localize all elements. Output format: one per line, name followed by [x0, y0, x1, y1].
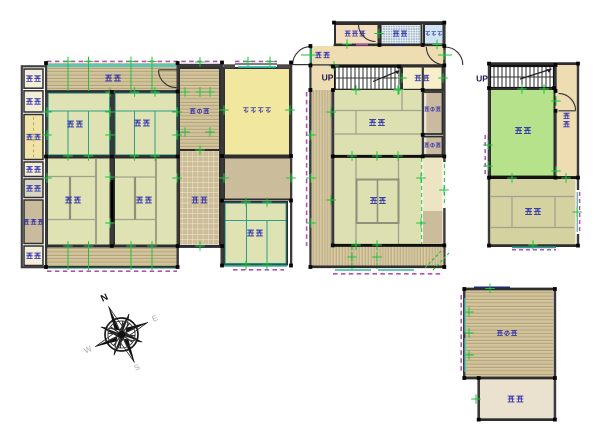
svg-text:UP: UP: [322, 73, 334, 83]
svg-text:UP: UP: [476, 74, 488, 84]
